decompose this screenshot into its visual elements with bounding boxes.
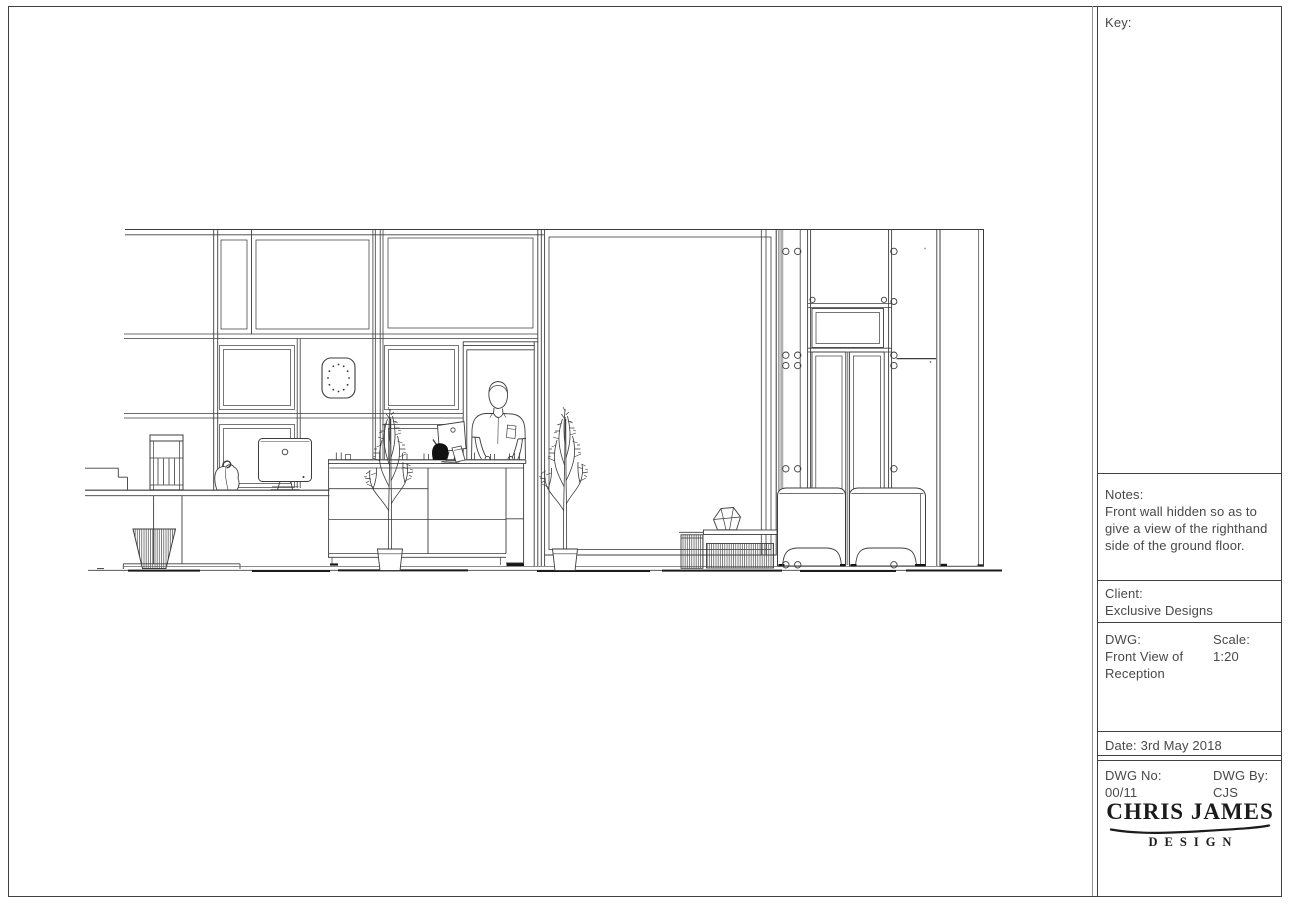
client-label: Client: — [1105, 585, 1276, 602]
company-logo: CHRIS JAMES DESIGN — [1098, 800, 1282, 850]
date-text: Date: 3rd May 2018 — [1105, 738, 1222, 753]
scale-value: 1:20 — [1213, 648, 1250, 665]
drawing-sheet: Key: Notes: Front wall hidden so as to g… — [0, 0, 1290, 905]
notes-section: Notes: Front wall hidden so as to give a… — [1098, 473, 1282, 580]
title-block: Key: Notes: Front wall hidden so as to g… — [1097, 6, 1282, 896]
logo-primary-text: CHRIS JAMES — [1098, 800, 1282, 823]
dwg-value: Front View of Reception — [1105, 648, 1210, 682]
logo-underline-swoosh — [1109, 824, 1271, 835]
notes-text: Front wall hidden so as to give a view o… — [1105, 503, 1276, 554]
logo-secondary-text: DESIGN — [1098, 835, 1282, 850]
client-section: Client: Exclusive Designs — [1098, 580, 1282, 622]
key-label: Key: — [1105, 15, 1132, 30]
dwg-label: DWG: — [1105, 631, 1210, 648]
date-section: Date: 3rd May 2018 — [1098, 731, 1282, 755]
notes-label: Notes: — [1105, 486, 1276, 503]
key-section: Key: — [1098, 6, 1282, 473]
client-value: Exclusive Designs — [1105, 602, 1276, 619]
dwg-section: DWG: Front View of Reception Scale: 1:20 — [1098, 622, 1282, 691]
title-block-inner-rule — [1092, 6, 1093, 896]
scale-label: Scale: — [1213, 631, 1250, 648]
logo-section: CHRIS JAMES DESIGN — [1098, 755, 1282, 896]
